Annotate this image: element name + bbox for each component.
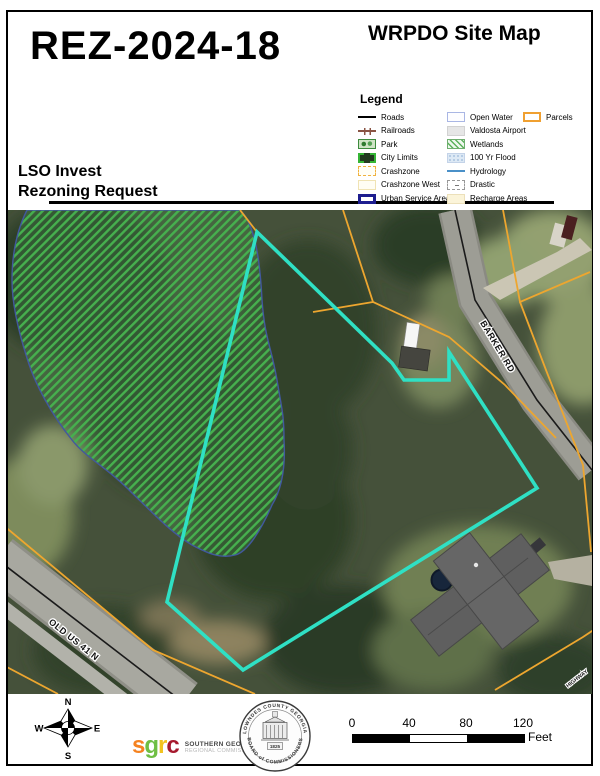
request-type: Rezoning Request [18,182,158,202]
legend-label: Crashzone West [381,180,440,189]
legend-column-1: RoadsRailroadsParkCity LimitsCrashzoneCr… [358,112,450,207]
legend-item-citylimits: City Limits [358,153,450,163]
scale-bar: 0 40 80 120 Feet [340,716,570,750]
airport-swatch [447,126,465,136]
legend-column-3: Parcels [523,112,573,126]
park-swatch [358,139,376,149]
wetlands-swatch [447,139,465,149]
scale-segment-3 [467,735,524,742]
sgrc-letter-c: c [166,732,178,759]
legend-item-recharge: Recharge Areas [447,194,527,204]
legend-item-roads: Roads [358,112,450,122]
roads-swatch [358,112,376,122]
compass-e: E [94,724,100,735]
legend-title: Legend [360,92,588,106]
legend-item-flood: 100 Yr Flood [447,153,527,163]
railroads-swatch [358,126,376,136]
compass-n: N [65,697,72,708]
legend-item-urban: Urban Service Area [358,194,450,204]
scale-bar-segments [352,734,525,743]
request-block: LSO Invest Rezoning Request [18,162,158,202]
drastic-swatch [447,180,465,190]
legend-item-hydrology: Hydrology [447,166,527,176]
legend-label: Drastic [470,180,495,189]
legend-item-parcels: Parcels [523,112,573,122]
scale-segment-2 [410,735,467,742]
crashzone-swatch [358,166,376,176]
legend-item-airport: Valdosta Airport [447,126,527,136]
legend-label: Hydrology [470,167,506,176]
compass-s: S [65,751,71,762]
crashzonewest-swatch [358,180,376,190]
legend-label: City Limits [381,153,418,162]
scale-tick-80: 80 [459,716,472,730]
legend-item-drastic: Drastic [447,180,527,190]
county-seal: LOWNDES COUNTY GEORGIA BOARD of COMMISSI… [238,699,312,773]
legend-item-railroads: Railroads [358,126,450,136]
parcels-swatch [523,112,541,122]
legend-label: Wetlands [470,140,503,149]
legend-label: Crashzone [381,167,420,176]
sgrc-wordmark: sgrc [132,734,179,758]
legend-label: Urban Service Area [381,194,450,203]
hydrology-swatch [447,166,465,176]
shed [399,346,431,371]
legend-label: Roads [381,113,404,122]
legend-label: Recharge Areas [470,194,527,203]
legend-column-2: Open WaterValdosta AirportWetlands100 Yr… [447,112,527,207]
flood-swatch [447,153,465,163]
scale-tick-0: 0 [349,716,356,730]
compass-star [44,709,92,747]
sgrc-letter-s: s [132,732,144,759]
legend-item-crashzone: Crashzone [358,166,450,176]
legend-item-wetlands: Wetlands [447,139,527,149]
legend-label: 100 Yr Flood [470,153,516,162]
legend-label: Railroads [381,126,415,135]
legend: Legend RoadsRailroadsParkCity LimitsCras… [356,92,588,112]
compass-w: W [35,724,44,735]
aerial-map: BARKER RD OLD US 41 N HIGHWAY [8,210,592,694]
sgrc-letter-g: g [144,732,158,759]
legend-label: Park [381,140,397,149]
legend-item-park: Park [358,139,450,149]
legend-label: Valdosta Airport [470,126,526,135]
scale-tick-40: 40 [402,716,415,730]
legend-label: Open Water [470,113,513,122]
legend-item-openwater: Open Water [447,112,527,122]
openwater-swatch [447,112,465,122]
scale-unit-label: Feet [528,730,552,744]
recharge-swatch [447,194,465,204]
aerial-map-svg: BARKER RD OLD US 41 N HIGHWAY [8,210,592,694]
urban-swatch [358,194,376,204]
case-number-title: REZ-2024-18 [30,24,281,69]
citylimits-swatch [358,153,376,163]
map-title: WRPDO Site Map [368,22,541,46]
scale-segment-1 [353,735,410,742]
legend-item-crashzonewest: Crashzone West [358,180,450,190]
scale-tick-120: 120 [513,716,533,730]
site-map-page: REZ-2024-18 WRPDO Site Map LSO Invest Re… [0,0,600,776]
compass-rose: N E S W [34,696,102,762]
seal-year: 1825 [270,744,281,749]
legend-label: Parcels [546,113,573,122]
applicant-name: LSO Invest [18,162,158,182]
